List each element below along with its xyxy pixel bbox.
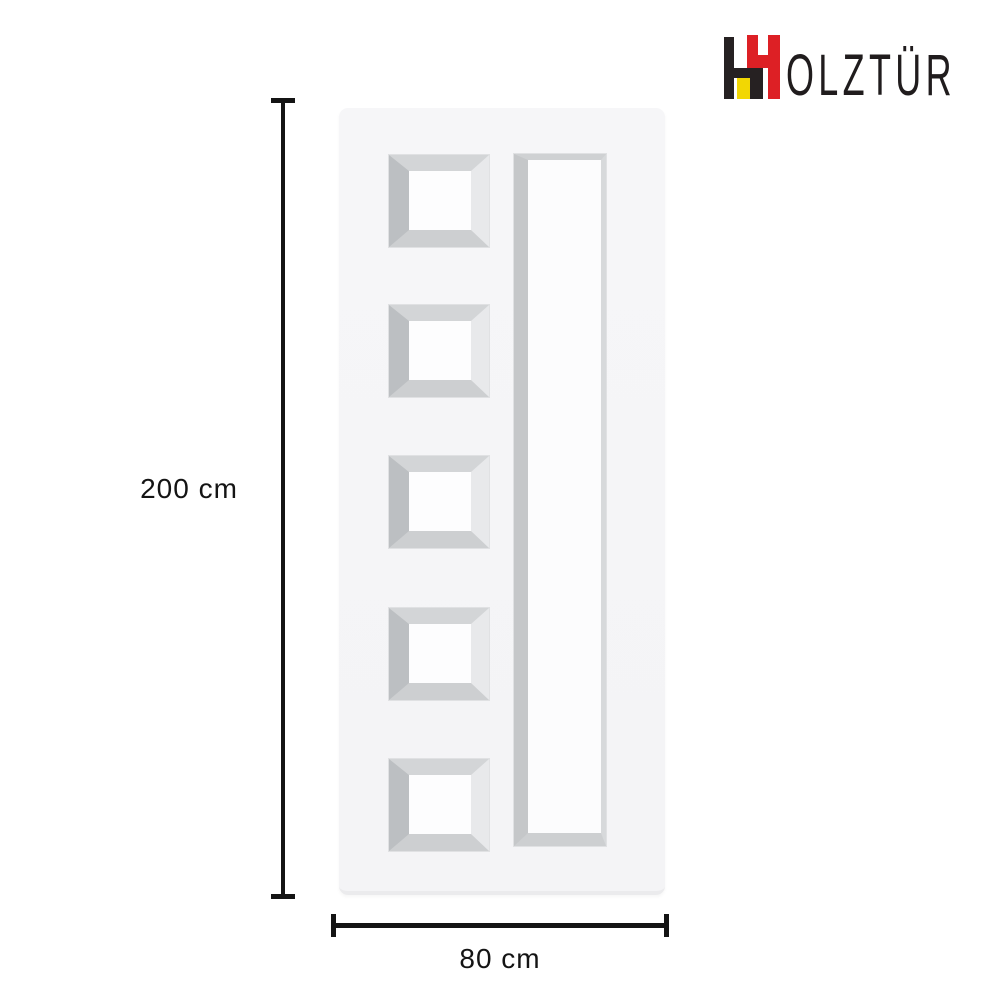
- width-dimension-label: 80 cm: [435, 943, 565, 975]
- door-square-panel-4: [388, 607, 490, 701]
- icon-black-leg: [750, 68, 763, 99]
- panel-bevel: [514, 154, 606, 846]
- height-dimension-label: 200 cm: [124, 473, 254, 505]
- page: { "brand": { "name": "HOLZTÜR", "wordmar…: [0, 0, 1000, 1000]
- panel-bevel: [389, 456, 489, 548]
- door-square-panel-1: [388, 154, 490, 248]
- width-dimension-cap-left: [331, 914, 336, 937]
- door-illustration: [339, 108, 665, 895]
- holztur-h-icon: [722, 35, 780, 99]
- height-dimension-cap-bottom: [271, 894, 295, 899]
- icon-yellow-square: [737, 78, 750, 99]
- panel-bevel: [389, 759, 489, 851]
- height-dimension-line: [281, 100, 285, 897]
- brand-wordmark: OLZTÜR: [786, 52, 956, 100]
- icon-red-right-bar: [768, 35, 780, 99]
- icon-black-arm: [734, 68, 750, 78]
- panel-bevel: [389, 155, 489, 247]
- panel-bevel: [389, 608, 489, 700]
- height-dimension-cap-top: [271, 98, 295, 103]
- door-square-panel-3: [388, 455, 490, 549]
- width-dimension-cap-right: [664, 914, 669, 937]
- door-square-panel-5: [388, 758, 490, 852]
- width-dimension-line: [333, 923, 667, 928]
- door-square-panel-2: [388, 304, 490, 398]
- icon-black-left-bar: [724, 37, 734, 99]
- door-tall-panel: [513, 153, 607, 847]
- brand-logo: OLZTÜR: [722, 35, 972, 105]
- panel-bevel: [389, 305, 489, 397]
